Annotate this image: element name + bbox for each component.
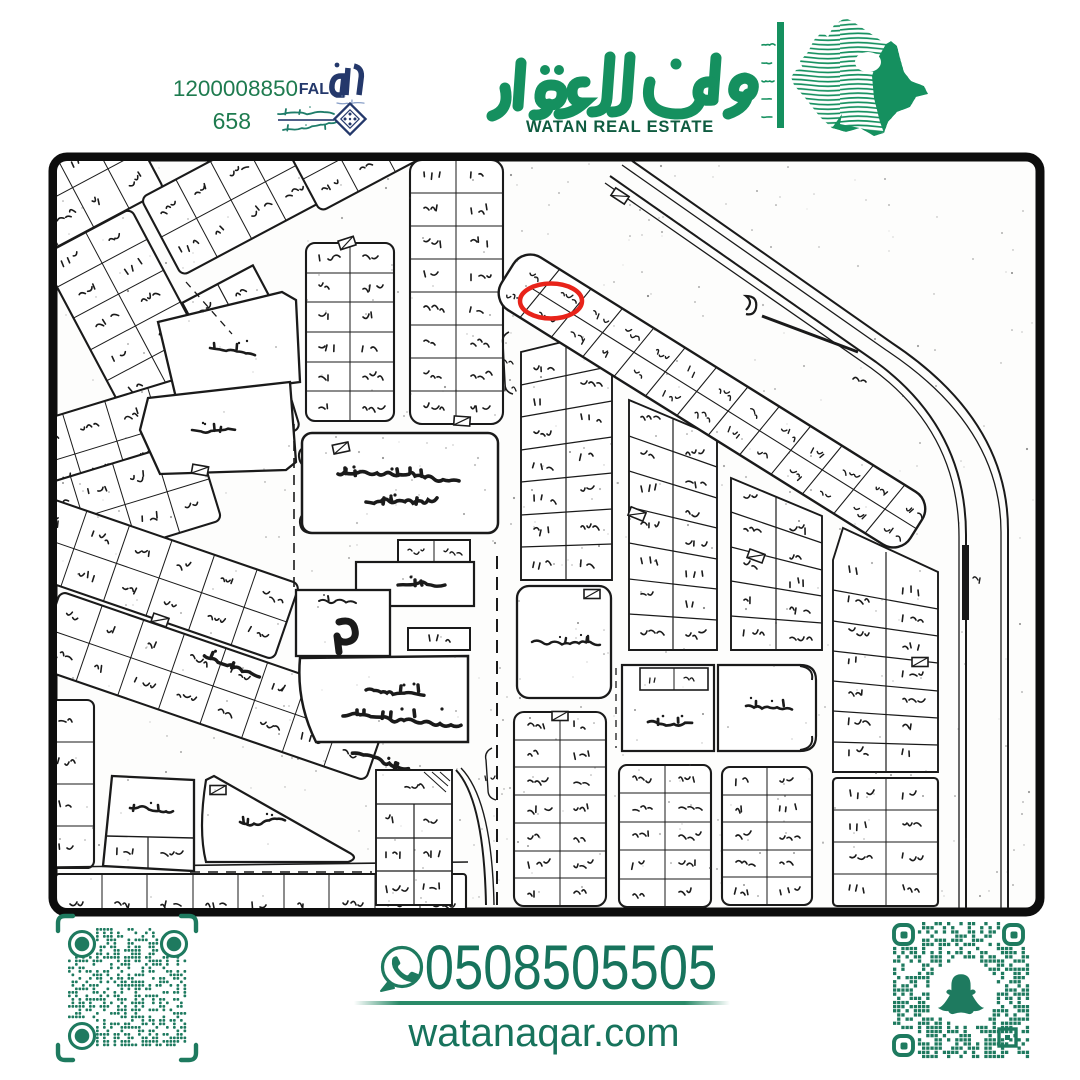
svg-text:0508505505: 0508505505 (425, 933, 717, 1004)
svg-text:1200008850: 1200008850 (173, 76, 298, 101)
svg-text:WATAN REAL ESTATE: WATAN REAL ESTATE (526, 118, 714, 136)
svg-text:658: 658 (213, 108, 251, 134)
svg-text:watanaqar.com: watanaqar.com (407, 1011, 679, 1055)
svg-text:FAL: FAL (299, 81, 329, 98)
